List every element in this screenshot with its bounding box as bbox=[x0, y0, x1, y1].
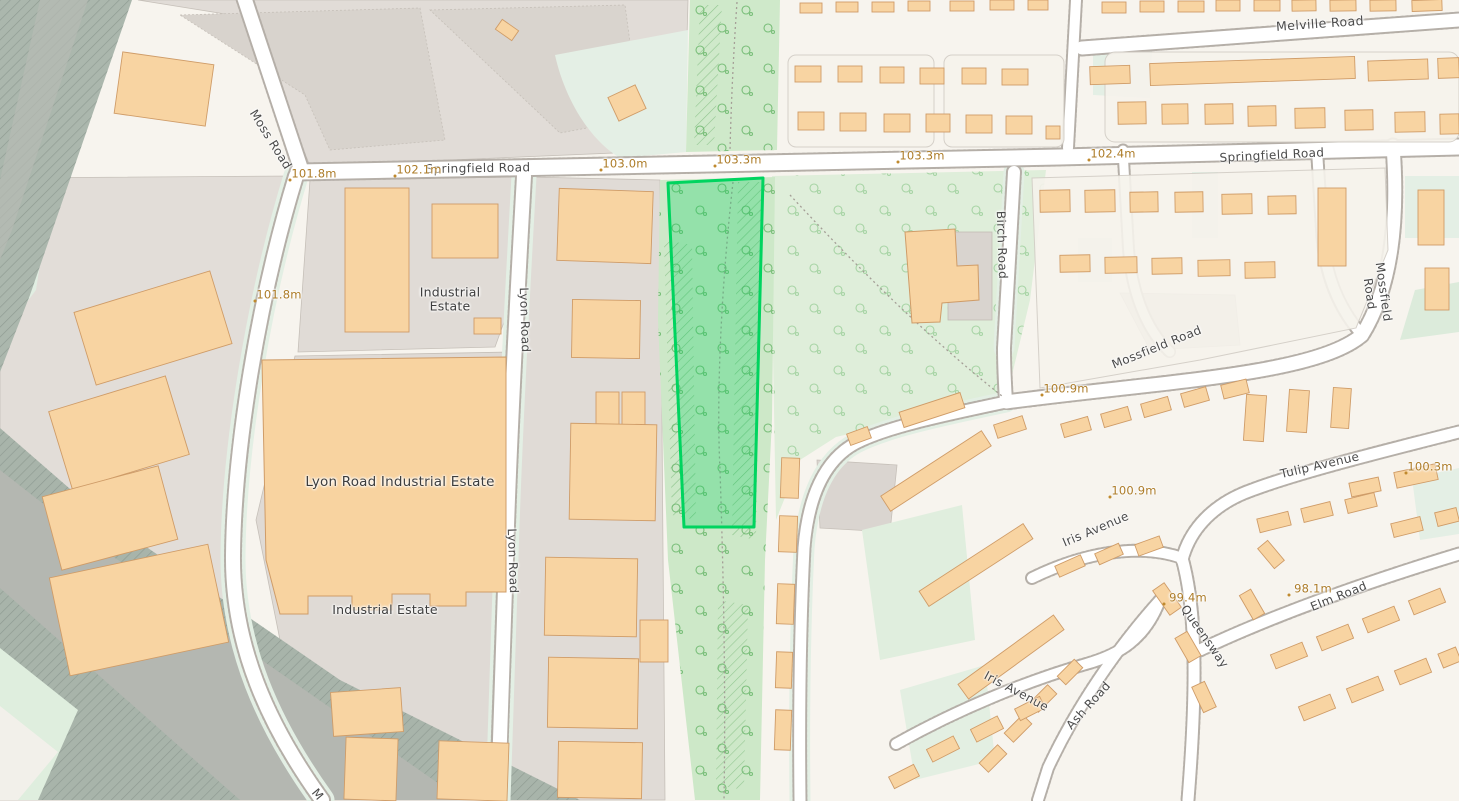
house bbox=[1118, 102, 1146, 124]
house bbox=[778, 516, 797, 553]
house bbox=[1130, 192, 1158, 212]
warehouse-building bbox=[547, 657, 638, 729]
house bbox=[1205, 104, 1233, 124]
house bbox=[1330, 0, 1356, 11]
house bbox=[795, 66, 821, 82]
house bbox=[1370, 0, 1396, 11]
house bbox=[776, 584, 794, 625]
house bbox=[1438, 58, 1459, 79]
house bbox=[966, 115, 992, 133]
house bbox=[800, 3, 822, 13]
house bbox=[920, 68, 944, 84]
house bbox=[1060, 255, 1090, 273]
house bbox=[1345, 110, 1373, 130]
warehouse-building bbox=[345, 188, 409, 332]
house bbox=[1222, 194, 1252, 215]
house bbox=[780, 458, 799, 499]
warehouse-building bbox=[544, 557, 637, 637]
house bbox=[1006, 116, 1032, 134]
house bbox=[908, 1, 930, 11]
house bbox=[1216, 0, 1240, 11]
house bbox=[1152, 258, 1182, 275]
lyon-road-industrial-estate-building bbox=[262, 357, 506, 614]
warehouse-building bbox=[344, 737, 398, 801]
house bbox=[1425, 268, 1449, 310]
house bbox=[1140, 1, 1164, 12]
house bbox=[774, 710, 791, 751]
house bbox=[1395, 112, 1425, 133]
house bbox=[1368, 59, 1429, 81]
house bbox=[962, 68, 986, 84]
house bbox=[950, 1, 974, 11]
house bbox=[1418, 190, 1444, 245]
warehouse-building bbox=[331, 688, 404, 737]
warehouse-building bbox=[569, 423, 657, 520]
house bbox=[1162, 104, 1188, 124]
house bbox=[1028, 0, 1048, 10]
house bbox=[1318, 188, 1346, 266]
warehouse-building bbox=[558, 741, 643, 798]
house bbox=[872, 2, 894, 12]
house bbox=[1040, 190, 1070, 213]
house bbox=[836, 2, 858, 12]
selected-parcel[interactable] bbox=[668, 178, 763, 527]
warehouse-building bbox=[557, 188, 653, 263]
house bbox=[1090, 65, 1131, 84]
house bbox=[1102, 2, 1126, 13]
house bbox=[926, 114, 950, 132]
warehouse-building bbox=[571, 299, 640, 358]
house bbox=[1178, 1, 1204, 12]
warehouse-building bbox=[640, 620, 668, 662]
house bbox=[1243, 394, 1266, 441]
house bbox=[990, 0, 1014, 10]
house bbox=[840, 113, 866, 131]
house bbox=[798, 112, 824, 130]
house bbox=[1248, 106, 1276, 126]
warehouse-building bbox=[596, 392, 619, 428]
warehouse-building bbox=[432, 204, 498, 258]
house bbox=[1245, 262, 1275, 279]
warehouse-building bbox=[437, 741, 509, 801]
house bbox=[1254, 0, 1280, 11]
house bbox=[1292, 0, 1316, 11]
house bbox=[1331, 387, 1352, 428]
house bbox=[880, 67, 904, 83]
house bbox=[1412, 0, 1442, 12]
house bbox=[1002, 69, 1028, 85]
house bbox=[838, 66, 862, 82]
house bbox=[1085, 190, 1115, 213]
warehouse-building bbox=[114, 52, 214, 126]
house bbox=[1046, 126, 1060, 139]
house bbox=[1175, 192, 1203, 212]
house bbox=[1198, 260, 1230, 277]
house bbox=[775, 652, 792, 689]
house bbox=[1295, 108, 1325, 129]
house bbox=[1268, 196, 1296, 214]
warehouse-building bbox=[622, 392, 645, 428]
map-canvas[interactable] bbox=[0, 0, 1459, 801]
house bbox=[1287, 389, 1310, 432]
house bbox=[884, 114, 910, 132]
warehouse-building bbox=[474, 318, 501, 334]
house bbox=[1105, 257, 1137, 274]
house bbox=[1440, 114, 1459, 134]
map-viewport[interactable]: Melville RoadSpringfield RoadSpringfield… bbox=[0, 0, 1459, 801]
